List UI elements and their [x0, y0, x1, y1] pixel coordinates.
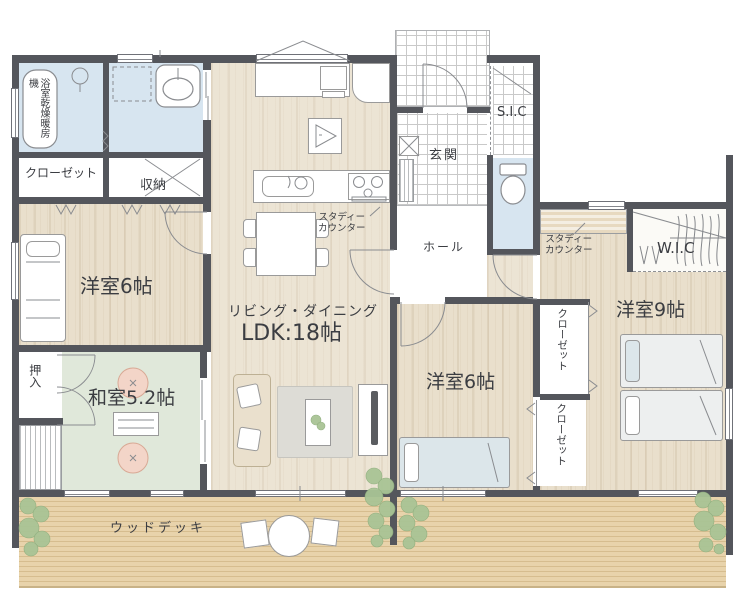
kitchen-corner-counter: [352, 63, 390, 103]
bed-east-1-pillow: [625, 340, 640, 382]
window: [638, 490, 698, 497]
window: [11, 242, 19, 300]
wall: [467, 107, 490, 113]
label-sic: S.I.C: [497, 106, 526, 120]
bed-south-pillow: [404, 443, 419, 482]
label-bedroom-south: 洋室6帖: [426, 372, 495, 393]
label-genkan: 玄関: [429, 149, 459, 163]
window: [255, 490, 346, 497]
wic-opening: [633, 271, 726, 272]
wall: [390, 297, 397, 545]
label-bedroom-east: 洋室9帖: [616, 300, 685, 321]
deck-chair: [240, 519, 269, 548]
shoe-cabinet: [399, 136, 419, 156]
door-opening: [400, 297, 445, 304]
stove: [348, 173, 390, 200]
wall: [12, 197, 210, 204]
closet-face: [536, 400, 537, 486]
sic-opening: [490, 66, 491, 155]
label-washitsu: 和室5.2帖: [88, 388, 175, 409]
room-washroom: [109, 62, 203, 152]
bed-nw-pillow: [26, 241, 60, 257]
dining-chair: [243, 248, 256, 267]
deck-chair: [311, 518, 340, 547]
sliding-door-washroom: [203, 70, 211, 120]
dining-chair: [243, 219, 256, 238]
deck-edge: [19, 586, 726, 588]
kitchen-appliance: [320, 66, 347, 90]
floor-plan: 浴室乾燥暖房機 クローゼット 収納 洋室6帖 押入 和室5.2帖 リビング・ダイ…: [0, 0, 740, 616]
door-opening: [423, 107, 467, 113]
label-ldk-size: LDK:18帖: [241, 322, 342, 346]
window: [150, 490, 184, 497]
wall: [390, 62, 397, 203]
window: [588, 201, 625, 210]
label-closet-east-1: クローゼット: [556, 308, 568, 392]
study-counter-east: [540, 209, 627, 234]
label-bedroom-nw: 洋室6帖: [80, 275, 153, 297]
wall: [540, 299, 590, 305]
label-closet-east-2: クローゼット: [555, 403, 567, 487]
corridor-east: [487, 255, 533, 297]
deck-table: [268, 515, 310, 557]
wall: [533, 299, 540, 397]
label-oshiire: 押入: [27, 364, 41, 410]
door-opening: [533, 255, 540, 299]
wall: [533, 486, 540, 497]
wall: [12, 490, 733, 497]
wall: [390, 203, 397, 250]
wall: [390, 107, 423, 113]
dining-table: [256, 212, 316, 276]
window: [11, 88, 19, 138]
wall: [533, 55, 540, 255]
porch: [395, 30, 490, 107]
door-opening: [203, 212, 211, 254]
label-wood-deck: ウッドデッキ: [110, 522, 206, 536]
window: [117, 54, 153, 63]
wall: [537, 202, 733, 209]
label-bath-unit: 浴室乾燥暖房機: [26, 78, 49, 140]
window: [256, 54, 348, 63]
room-toilet: [493, 158, 533, 249]
window: [64, 490, 110, 497]
wall: [200, 464, 207, 490]
label-living-dining: リビング・ダイニング: [228, 305, 378, 320]
wall: [12, 345, 210, 352]
wall: [487, 155, 493, 255]
wall: [200, 352, 207, 378]
kitchen-appliance-tray: [322, 91, 345, 98]
wall: [12, 418, 63, 425]
bed-east-2-pillow: [625, 396, 640, 435]
dining-chair: [316, 248, 329, 267]
label-hall: ホール: [423, 241, 465, 254]
sofa-cushion: [236, 383, 262, 409]
wall: [540, 394, 590, 400]
label-study-counter-west: スタディー カウンター: [318, 212, 366, 234]
low-table: [305, 399, 331, 446]
washitsu-table: [113, 412, 159, 436]
label-storage: 収納: [140, 179, 166, 193]
label-closet-nw: クローゼット: [25, 167, 97, 180]
louver-screen: [19, 425, 62, 490]
genkan-step: [397, 205, 487, 206]
wall: [12, 152, 210, 158]
wall: [627, 209, 633, 272]
label-study-counter-east: スタディー カウンター: [545, 234, 593, 256]
refrigerator: [308, 118, 342, 154]
window: [400, 490, 486, 497]
window: [725, 388, 733, 440]
label-wic: W.I.C: [657, 240, 695, 257]
tv: [371, 391, 378, 445]
genkan-shelf: [399, 159, 414, 202]
wood-deck: [19, 497, 726, 586]
wall: [103, 62, 109, 197]
sofa-cushion: [236, 426, 261, 451]
kitchen-sink: [262, 176, 314, 197]
door-opening: [390, 250, 397, 297]
closet-face: [588, 302, 589, 394]
